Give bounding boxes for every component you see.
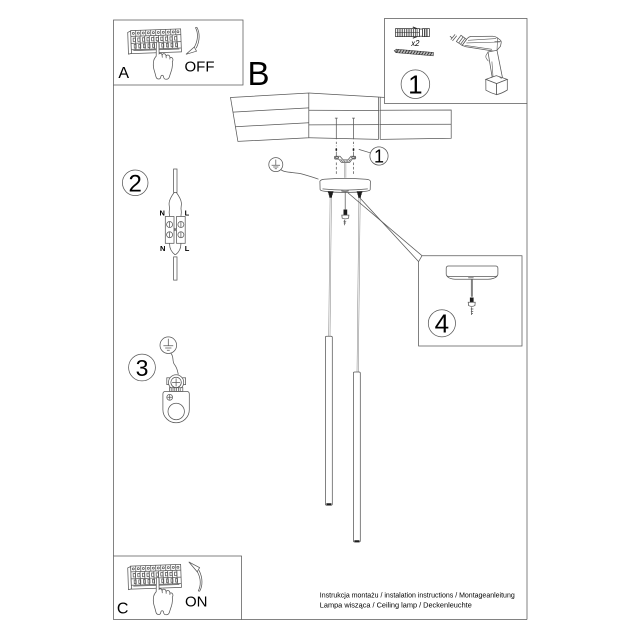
svg-text:OFF: OFF	[185, 59, 215, 76]
svg-text:B: B	[248, 55, 270, 92]
svg-text:L: L	[185, 244, 190, 253]
svg-text:ON: ON	[185, 594, 208, 611]
svg-text:2: 2	[129, 170, 142, 197]
svg-text:N: N	[160, 244, 165, 253]
svg-text:1: 1	[408, 70, 422, 100]
svg-text:N: N	[160, 208, 165, 217]
svg-text:x2: x2	[410, 39, 420, 48]
svg-text:3: 3	[136, 355, 149, 381]
svg-text:1: 1	[374, 146, 384, 166]
svg-text:A: A	[118, 65, 129, 82]
svg-text:C: C	[117, 600, 129, 617]
svg-text:4: 4	[435, 309, 449, 339]
svg-text:L: L	[185, 208, 190, 217]
svg-text:Instrukcja montażu / instalati: Instrukcja montażu / instalation instruc…	[320, 592, 515, 599]
svg-text:Lampa wisząca / Ceiling lamp /: Lampa wisząca / Ceiling lamp / Deckenleu…	[320, 603, 472, 610]
